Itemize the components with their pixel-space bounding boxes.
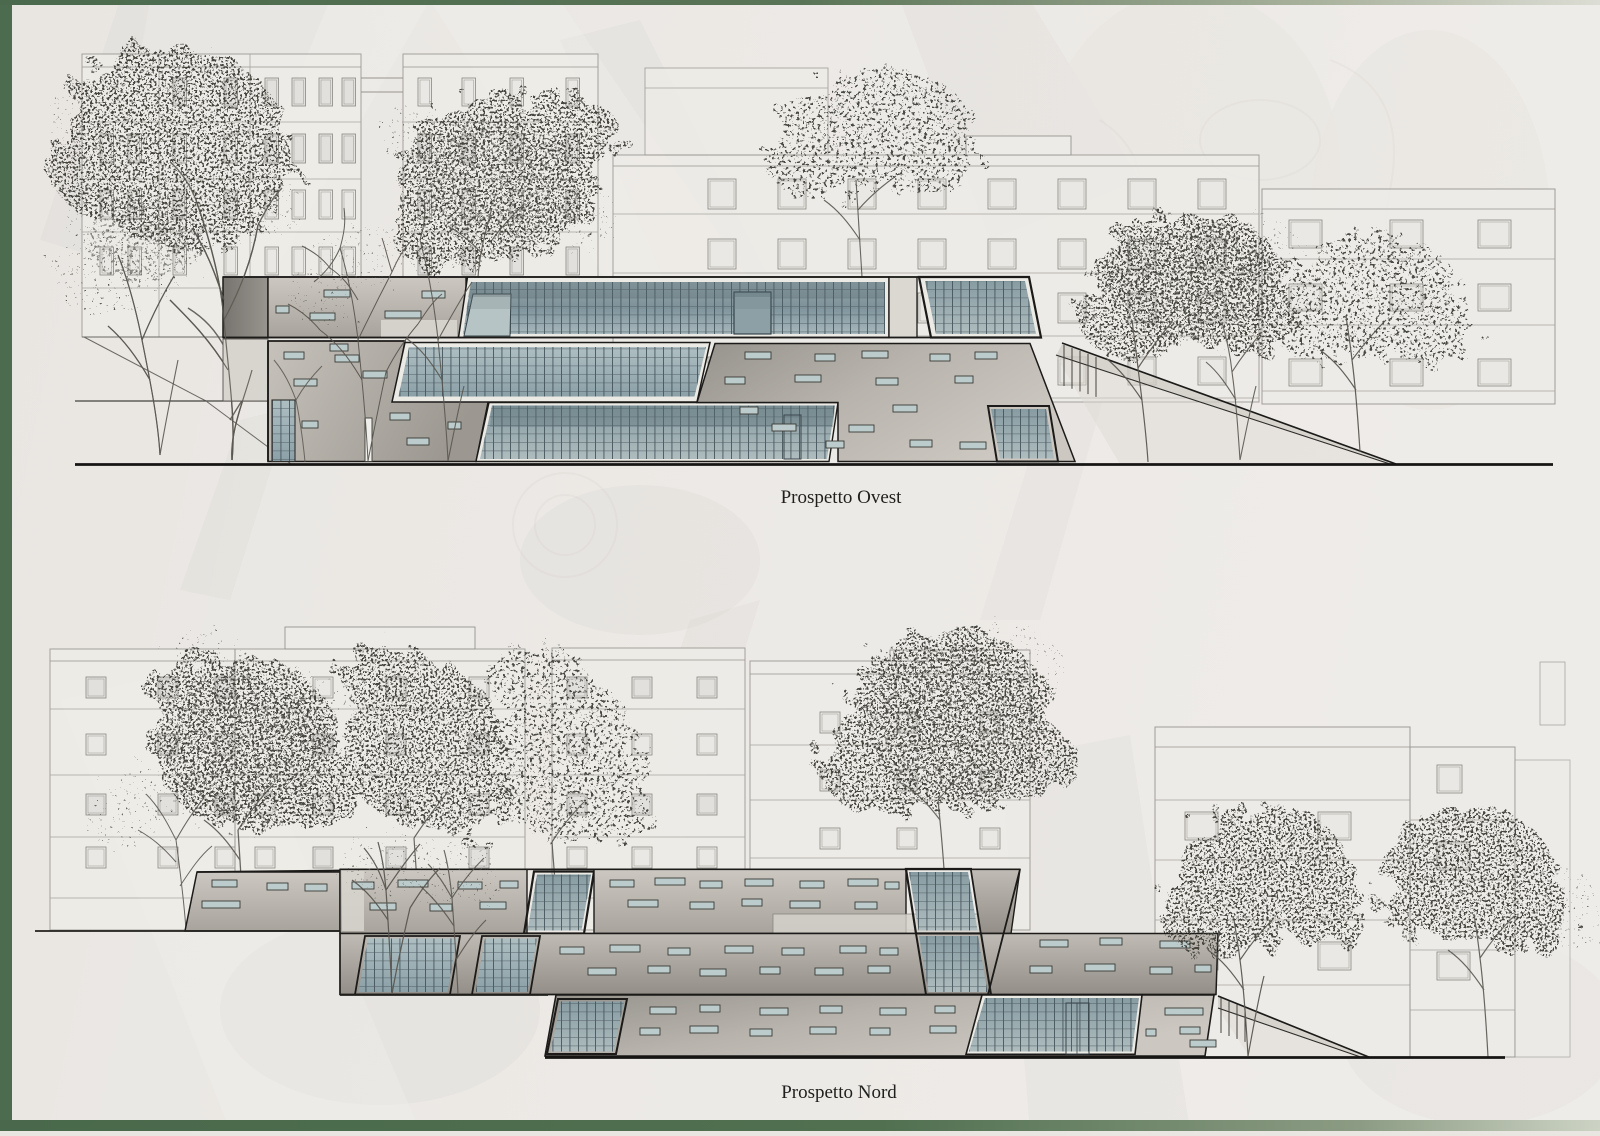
svg-text:Prospetto Ovest: Prospetto Ovest: [781, 487, 903, 508]
svg-text:Prospetto Nord: Prospetto Nord: [781, 1082, 897, 1103]
